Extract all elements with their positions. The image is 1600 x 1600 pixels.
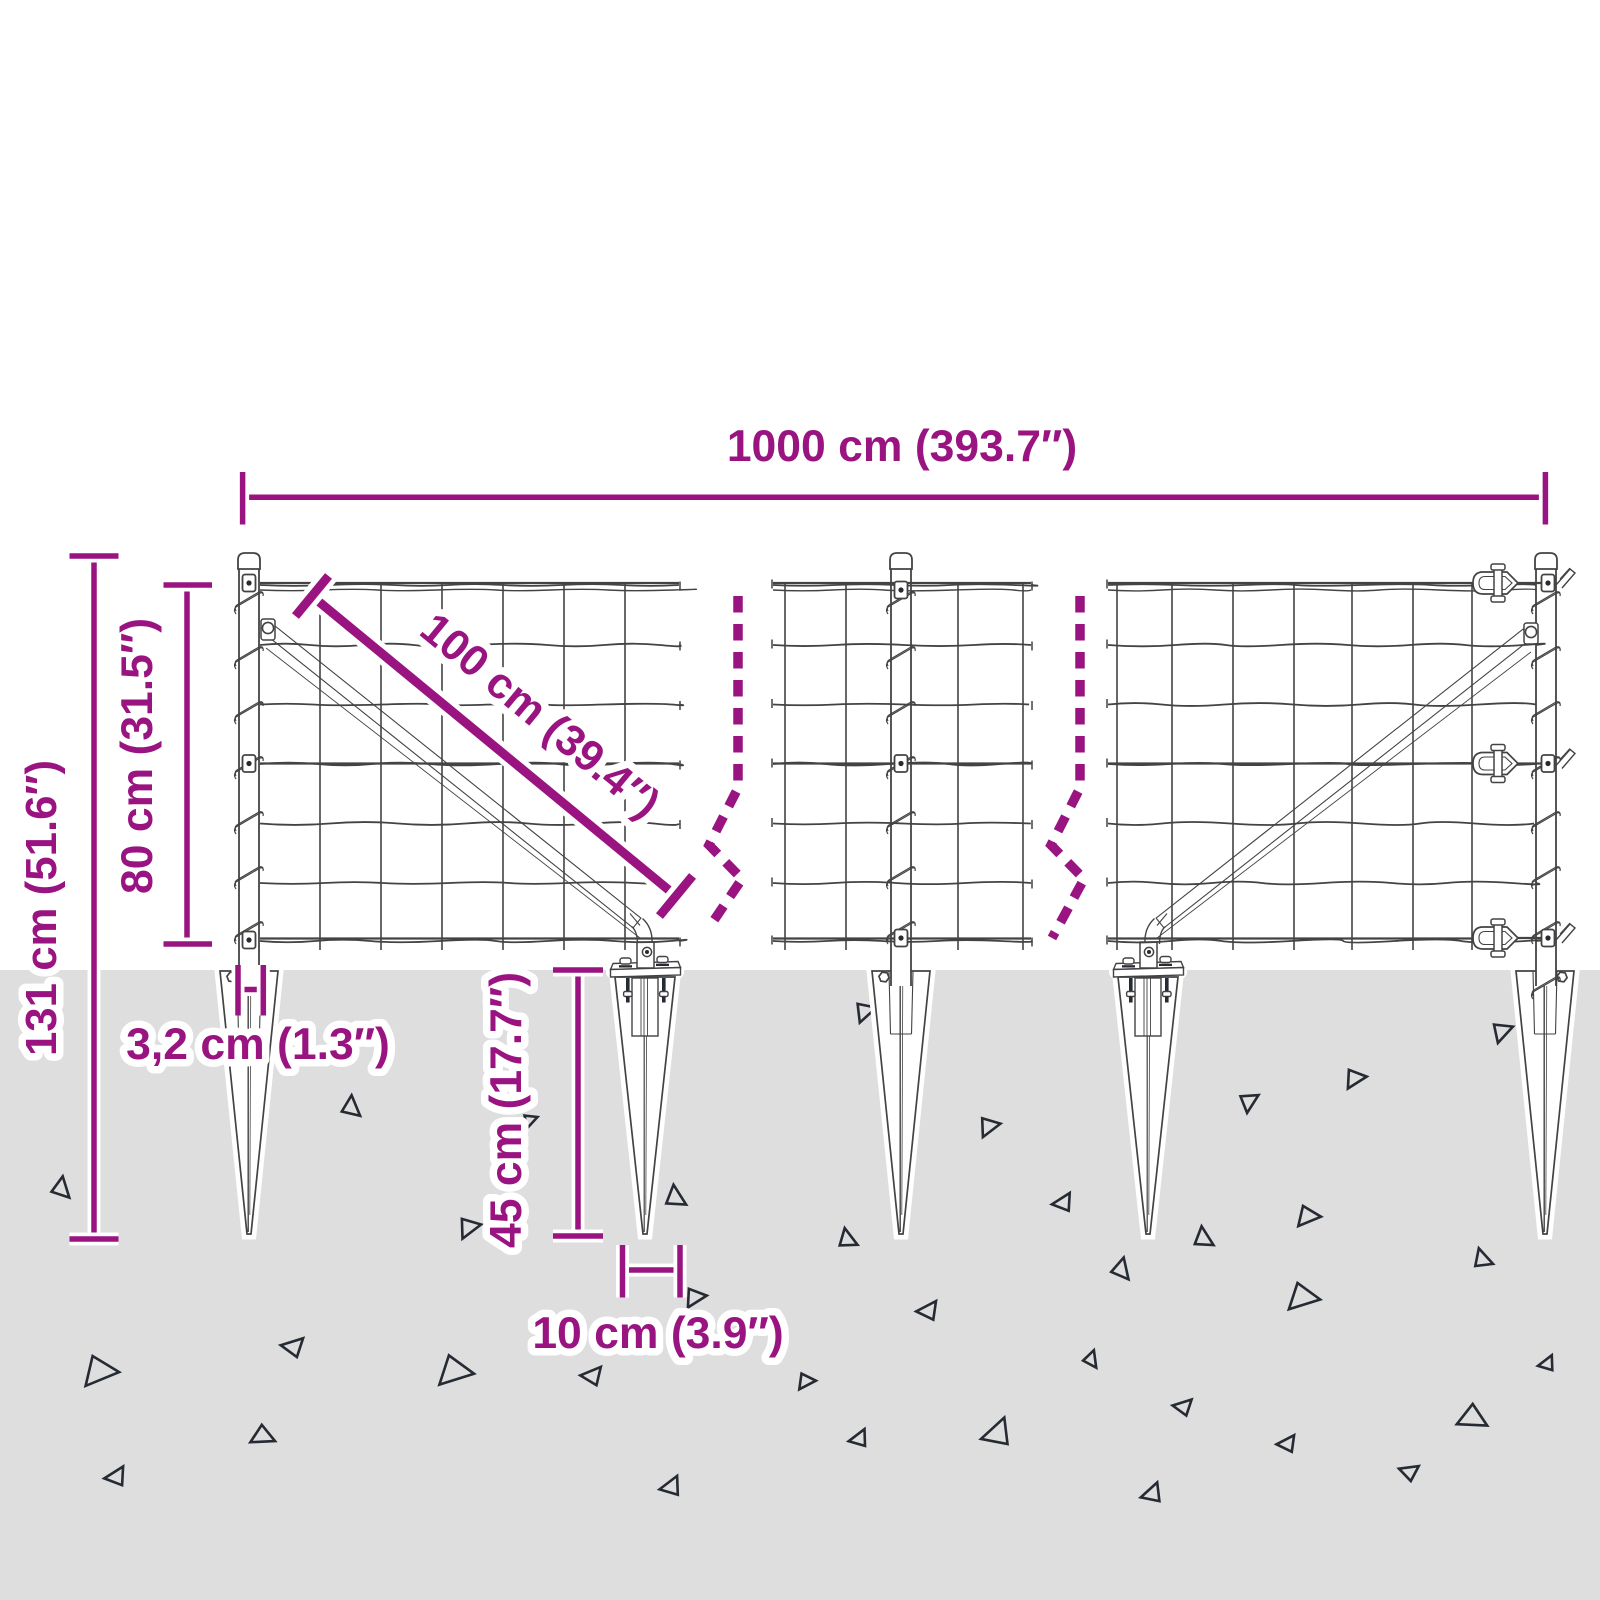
svg-text:45 cm (17.7″): 45 cm (17.7″) [482, 972, 531, 1248]
svg-text:3,2 cm (1.3″): 3,2 cm (1.3″) [126, 1020, 390, 1069]
svg-text:80 cm (31.5″): 80 cm (31.5″) [113, 618, 162, 894]
svg-text:1000 cm (393.7″): 1000 cm (393.7″) [727, 422, 1077, 471]
svg-text:10 cm (3.9″): 10 cm (3.9″) [532, 1309, 783, 1358]
svg-text:131 cm (51.6″): 131 cm (51.6″) [17, 760, 66, 1056]
